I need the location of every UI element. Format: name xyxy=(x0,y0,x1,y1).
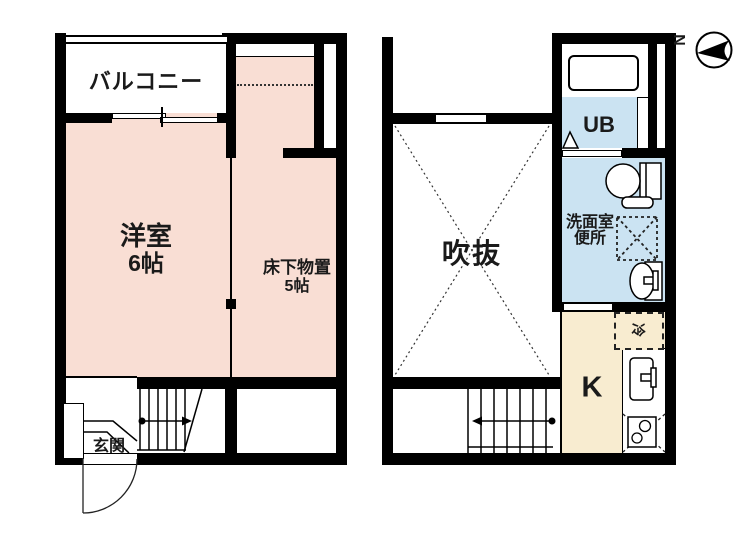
entrance-label: 玄関 xyxy=(93,432,125,456)
room-label: 洋室 6帖 xyxy=(120,223,172,277)
void-bottom-wall xyxy=(382,377,562,389)
balcony-label: バルコニー xyxy=(89,64,204,96)
kitchen-label: K xyxy=(582,372,603,405)
window-wall-left xyxy=(66,113,112,123)
kitchen-stair-line xyxy=(560,312,562,453)
storage-top-window xyxy=(236,44,314,57)
ub-door-bar xyxy=(562,150,622,157)
inner-wall-niche xyxy=(314,44,324,148)
washroom-toilet-label: 洗面室 便所 xyxy=(566,215,614,247)
compass-north-label: N xyxy=(672,34,690,46)
stairs-direction-arrow xyxy=(472,417,556,426)
floor-plan: バルコニー 洋室 6帖 床下物置 5帖 玄関 吹抜 UB 洗面室 便所 K 冷 … xyxy=(0,0,750,550)
outer-wall-left xyxy=(382,37,393,465)
north-compass-icon xyxy=(697,33,732,68)
stairs-up xyxy=(137,389,202,452)
niche-bottom-stub xyxy=(283,148,336,158)
kitchen-counter xyxy=(622,348,666,453)
outer-wall-left xyxy=(55,33,66,465)
stairs-down xyxy=(468,389,553,453)
refrigerator-label: 冷 xyxy=(628,323,648,337)
divider-door-stop xyxy=(226,299,236,309)
stair-room-wall xyxy=(225,377,237,465)
window-center-tick xyxy=(161,107,163,127)
sliding-window-pane xyxy=(112,113,166,119)
bath-top-wall xyxy=(552,33,676,44)
lower-section-top-wall xyxy=(137,377,347,389)
balcony-railing xyxy=(66,35,227,44)
bath-column-wall xyxy=(552,33,562,312)
shoe-cabinet xyxy=(63,403,84,459)
stairs-direction-arrow xyxy=(139,417,193,426)
unit-bath-label: UB xyxy=(583,112,615,138)
void-label: 吹抜 xyxy=(442,232,502,272)
outer-wall-bottom xyxy=(382,453,676,465)
outer-wall-right xyxy=(665,33,676,465)
bathtub-icon xyxy=(568,55,639,91)
outer-wall-top xyxy=(222,33,347,44)
room-divider-wall xyxy=(226,44,236,158)
ub-bottom-stub xyxy=(622,148,676,158)
sliding-window-pane xyxy=(160,117,218,123)
right-wall-niche xyxy=(324,44,336,148)
storage-dotted-line xyxy=(237,84,313,86)
washroom-door-bar xyxy=(563,303,613,311)
room-divider-line xyxy=(230,158,232,377)
window-wall-right xyxy=(217,113,236,123)
storage-label: 床下物置 5帖 xyxy=(263,258,331,296)
void-window xyxy=(435,114,487,123)
entrance-floor-line xyxy=(66,376,137,378)
niche-inner-wall xyxy=(648,44,657,148)
entrance-door xyxy=(83,458,137,513)
outer-wall-right xyxy=(336,33,347,465)
